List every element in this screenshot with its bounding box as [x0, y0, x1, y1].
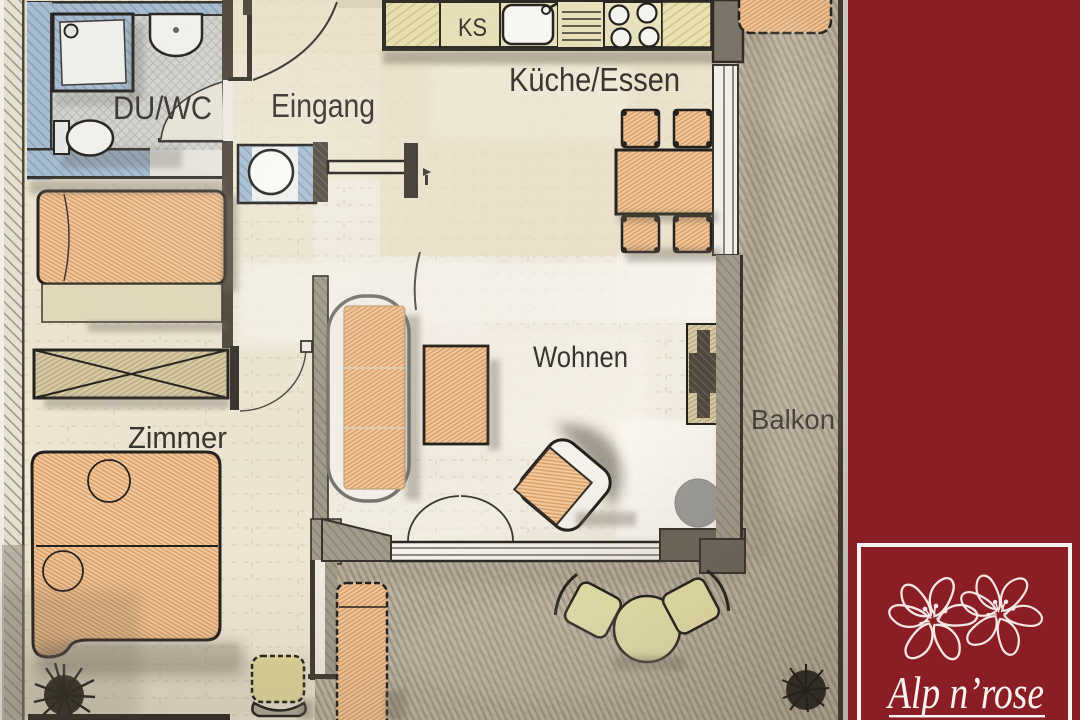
svg-text:Alp n’rose: Alp n’rose: [886, 667, 1044, 718]
